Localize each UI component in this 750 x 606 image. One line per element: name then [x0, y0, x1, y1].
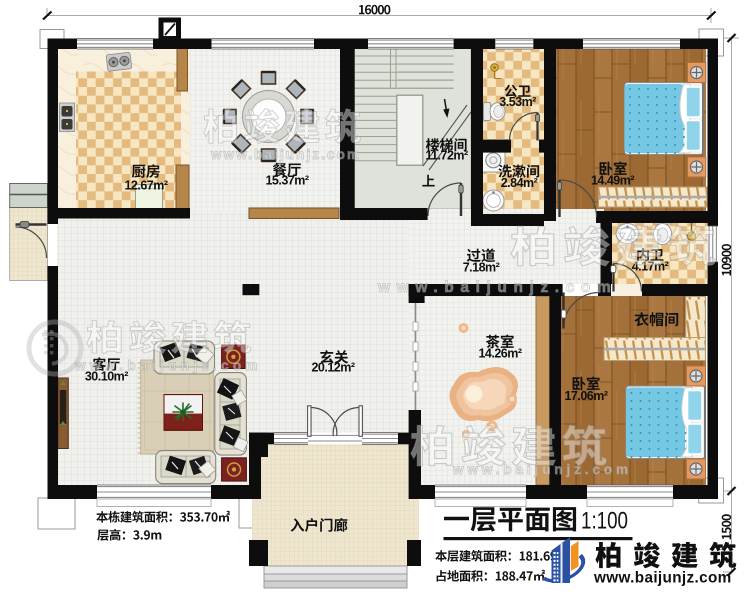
- svg-text:2.84m²: 2.84m²: [501, 176, 538, 190]
- svg-text:17.06m²: 17.06m²: [564, 389, 607, 403]
- svg-text:3.53m²: 3.53m²: [499, 95, 536, 109]
- svg-text:7.18m²: 7.18m²: [463, 261, 500, 275]
- svg-text:www.baijunjz.com: www.baijunjz.com: [593, 570, 732, 587]
- svg-text:14.26m²: 14.26m²: [478, 347, 521, 361]
- svg-text:12.67m²: 12.67m²: [124, 179, 167, 193]
- svg-text:11.72m²: 11.72m²: [425, 149, 468, 163]
- svg-text:www.baijunjz.com: www.baijunjz.com: [210, 147, 361, 162]
- svg-text:1:100: 1:100: [581, 508, 628, 535]
- svg-text:www.baijunjz.com: www.baijunjz.com: [452, 462, 632, 477]
- svg-text:20.12m²: 20.12m²: [311, 361, 354, 375]
- svg-text:15.37m²: 15.37m²: [265, 174, 308, 188]
- svg-text:www.baijunjz.com: www.baijunjz.com: [377, 279, 617, 296]
- svg-text:14.49m²: 14.49m²: [591, 174, 634, 188]
- svg-text:www.baijunjz.com: www.baijunjz.com: [74, 358, 262, 373]
